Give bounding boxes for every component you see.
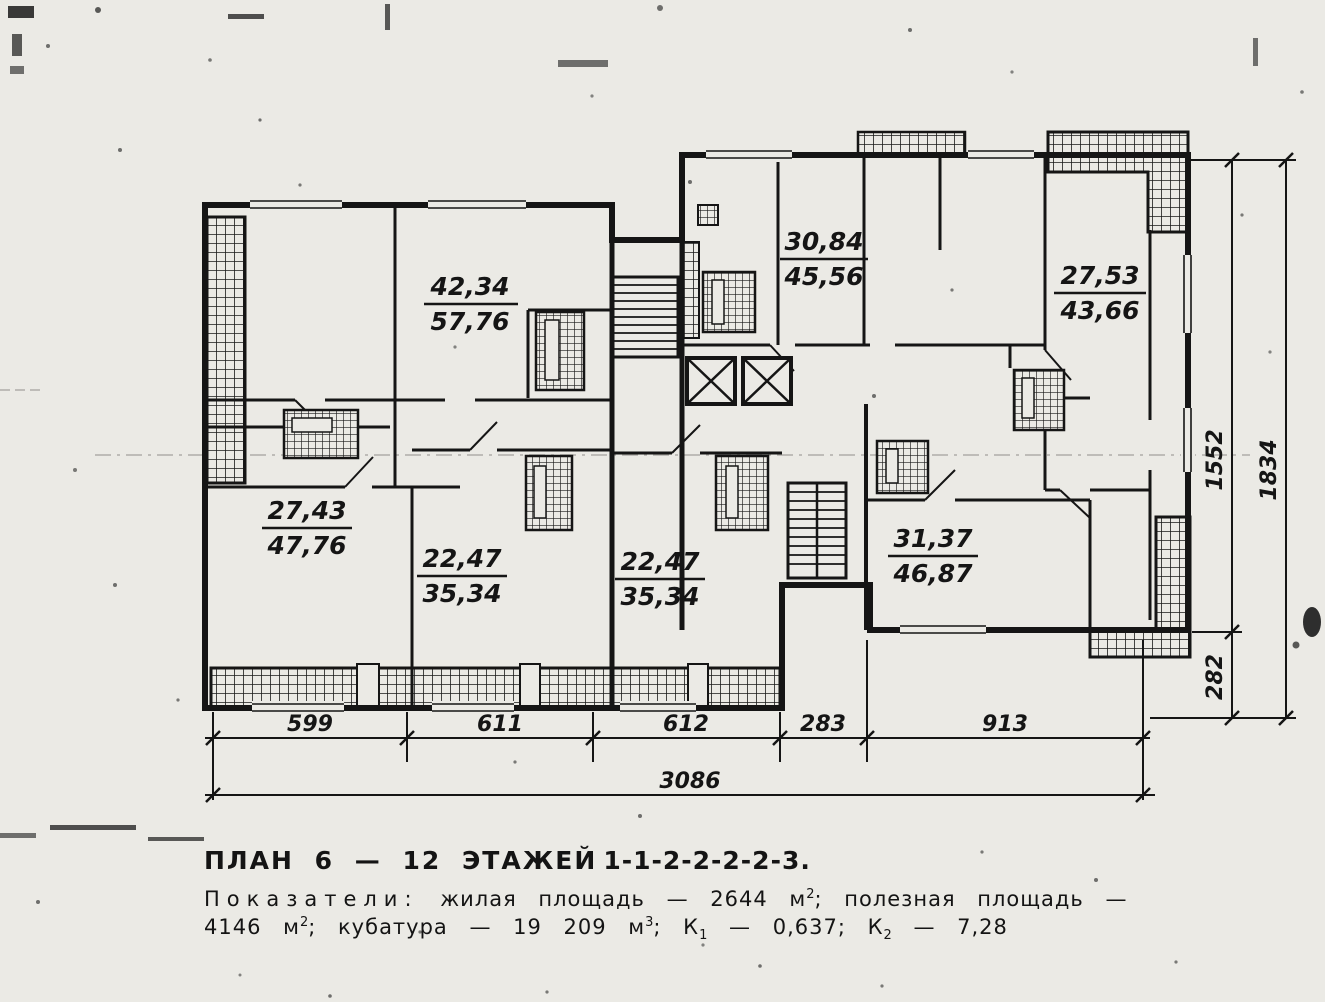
area-label-living: 22,47 bbox=[620, 547, 700, 576]
dimension-total-label: 3086 bbox=[659, 769, 720, 794]
plan-title-code: 1-1-2-2-2-2-3. bbox=[603, 846, 811, 875]
indicators-text: жилая площадь — 2644 м bbox=[419, 887, 807, 911]
plan-title-text: ПЛАН 6 — 12 ЭТАЖЕЙ bbox=[204, 846, 597, 875]
area-label-total: 57,76 bbox=[430, 307, 509, 336]
area-label-total: 47,76 bbox=[266, 531, 346, 560]
indicators-line-2: 4146 м2; кубатура — 19 209 м3; К1 — 0,63… bbox=[204, 913, 1204, 945]
dimension-label: 1552 bbox=[1203, 429, 1228, 490]
indicators-text: ; кубатура — 19 209 м bbox=[308, 915, 645, 939]
dimension-label: 612 bbox=[663, 712, 709, 737]
bathroom-blocks bbox=[284, 205, 1064, 530]
indicators-label: Показатели: bbox=[204, 887, 419, 911]
staircase-upper bbox=[612, 277, 678, 357]
superscript: 2 bbox=[300, 915, 308, 930]
staircase-lower bbox=[788, 483, 846, 578]
indicators-line-1: Показатели: жилая площадь — 2644 м2; пол… bbox=[204, 885, 1204, 913]
dimension-label: 611 bbox=[477, 712, 523, 737]
indicators-text: ; полезная площадь — bbox=[815, 887, 1128, 911]
area-label-total: 35,34 bbox=[620, 582, 699, 611]
bottom-dimensions: 599 611 612 283 913 3086 bbox=[205, 640, 1155, 802]
dimension-label: 282 bbox=[1203, 654, 1228, 700]
area-label-living: 31,37 bbox=[893, 524, 973, 553]
area-label-total: 45,56 bbox=[783, 262, 863, 291]
area-label-living: 22,47 bbox=[422, 544, 502, 573]
area-label-living: 30,84 bbox=[784, 227, 863, 256]
subscript: 2 bbox=[884, 929, 892, 944]
dimension-label: 283 bbox=[800, 712, 846, 737]
dimension-label: 913 bbox=[982, 712, 1028, 737]
area-label-total: 35,34 bbox=[422, 579, 501, 608]
caption-block: ПЛАН 6 — 12 ЭТАЖЕЙ1-1-2-2-2-2-3. Показат… bbox=[204, 846, 1204, 945]
dimension-total-label: 1834 bbox=[1257, 439, 1282, 500]
indicators-text: ; К bbox=[653, 915, 699, 939]
area-label-living: 27,53 bbox=[1060, 261, 1139, 290]
indicators-text: — 7,28 bbox=[892, 915, 1008, 939]
elevator-shafts bbox=[687, 358, 791, 404]
superscript: 2 bbox=[806, 887, 814, 902]
area-label-total: 46,87 bbox=[892, 559, 973, 588]
area-label-living: 27,43 bbox=[267, 496, 346, 525]
plan-title: ПЛАН 6 — 12 ЭТАЖЕЙ1-1-2-2-2-2-3. bbox=[204, 846, 1204, 875]
indicators-text: — 0,637; К bbox=[707, 915, 883, 939]
area-label-total: 43,66 bbox=[1059, 296, 1139, 325]
dimension-label: 599 bbox=[287, 712, 333, 737]
indicators-text: 4146 м bbox=[204, 915, 300, 939]
area-label-living: 42,34 bbox=[429, 272, 509, 301]
scanned-floor-plan-page: 42,34 57,76 30,84 45,56 27,53 43,66 27,4… bbox=[0, 0, 1325, 1002]
